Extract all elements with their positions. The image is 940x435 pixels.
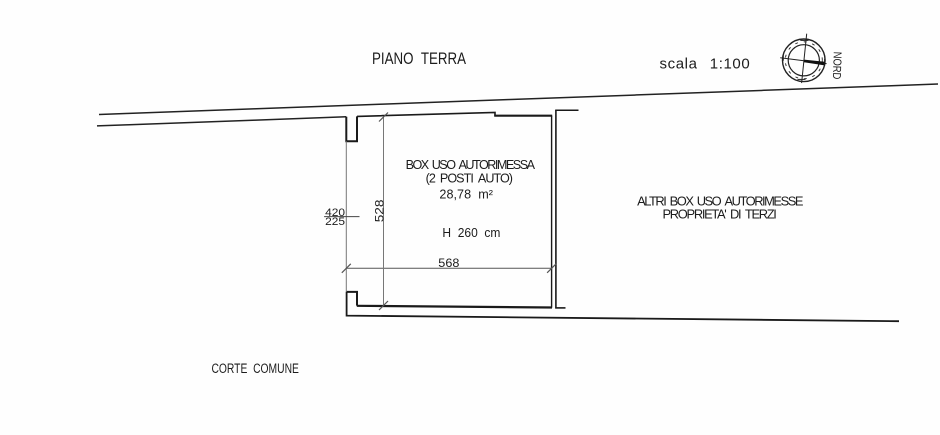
svg-text:225: 225	[325, 216, 345, 228]
svg-text:BOX USO AUTORIMESSA: BOX USO AUTORIMESSA	[406, 158, 536, 172]
svg-text:(2 POSTI AUTO): (2 POSTI AUTO)	[426, 172, 513, 186]
svg-text:PROPRIETA' DI TERZI: PROPRIETA' DI TERZI	[663, 207, 777, 222]
svg-text:NORD: NORD	[830, 51, 843, 79]
svg-text:PIANO TERRA: PIANO TERRA	[372, 49, 467, 68]
svg-text:28,78 m²: 28,78 m²	[439, 187, 493, 201]
svg-text:CORTE COMUNE: CORTE COMUNE	[211, 361, 299, 376]
svg-text:528: 528	[372, 199, 386, 222]
svg-text:scala 1:100: scala 1:100	[660, 56, 751, 73]
svg-text:H 260 cm: H 260 cm	[442, 226, 500, 240]
svg-text:568: 568	[438, 256, 459, 270]
